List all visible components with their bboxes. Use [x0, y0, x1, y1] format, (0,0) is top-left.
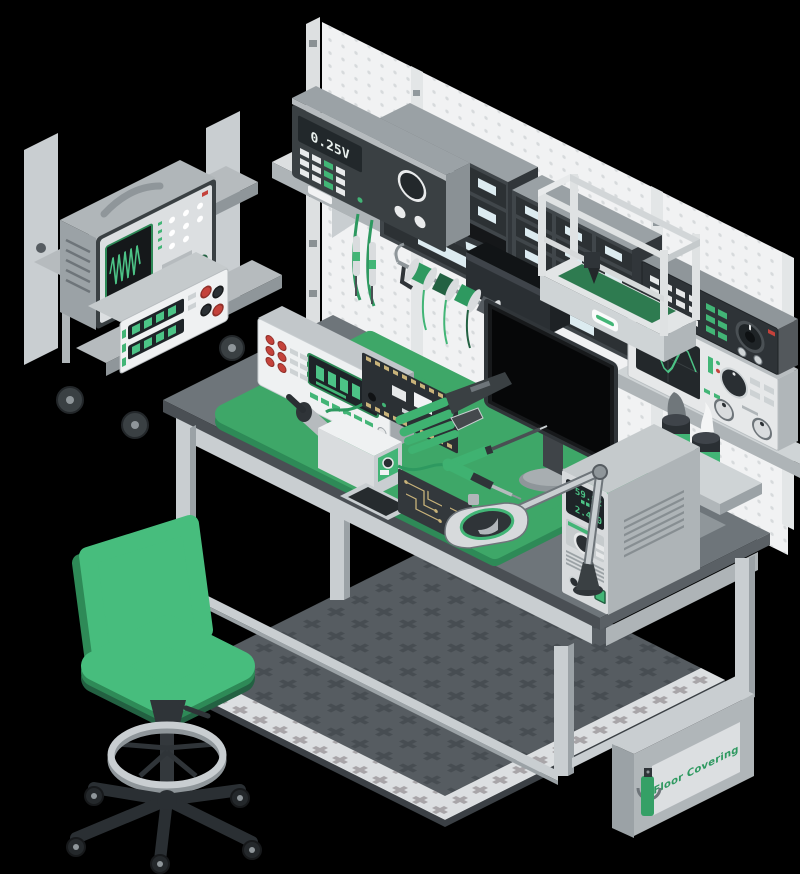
arm-joint	[593, 465, 607, 479]
desk-leg-front-center	[554, 643, 574, 776]
printer-extruder	[584, 252, 600, 268]
workbench-illustration: 0.25V	[0, 0, 800, 874]
station-knob	[383, 458, 393, 468]
